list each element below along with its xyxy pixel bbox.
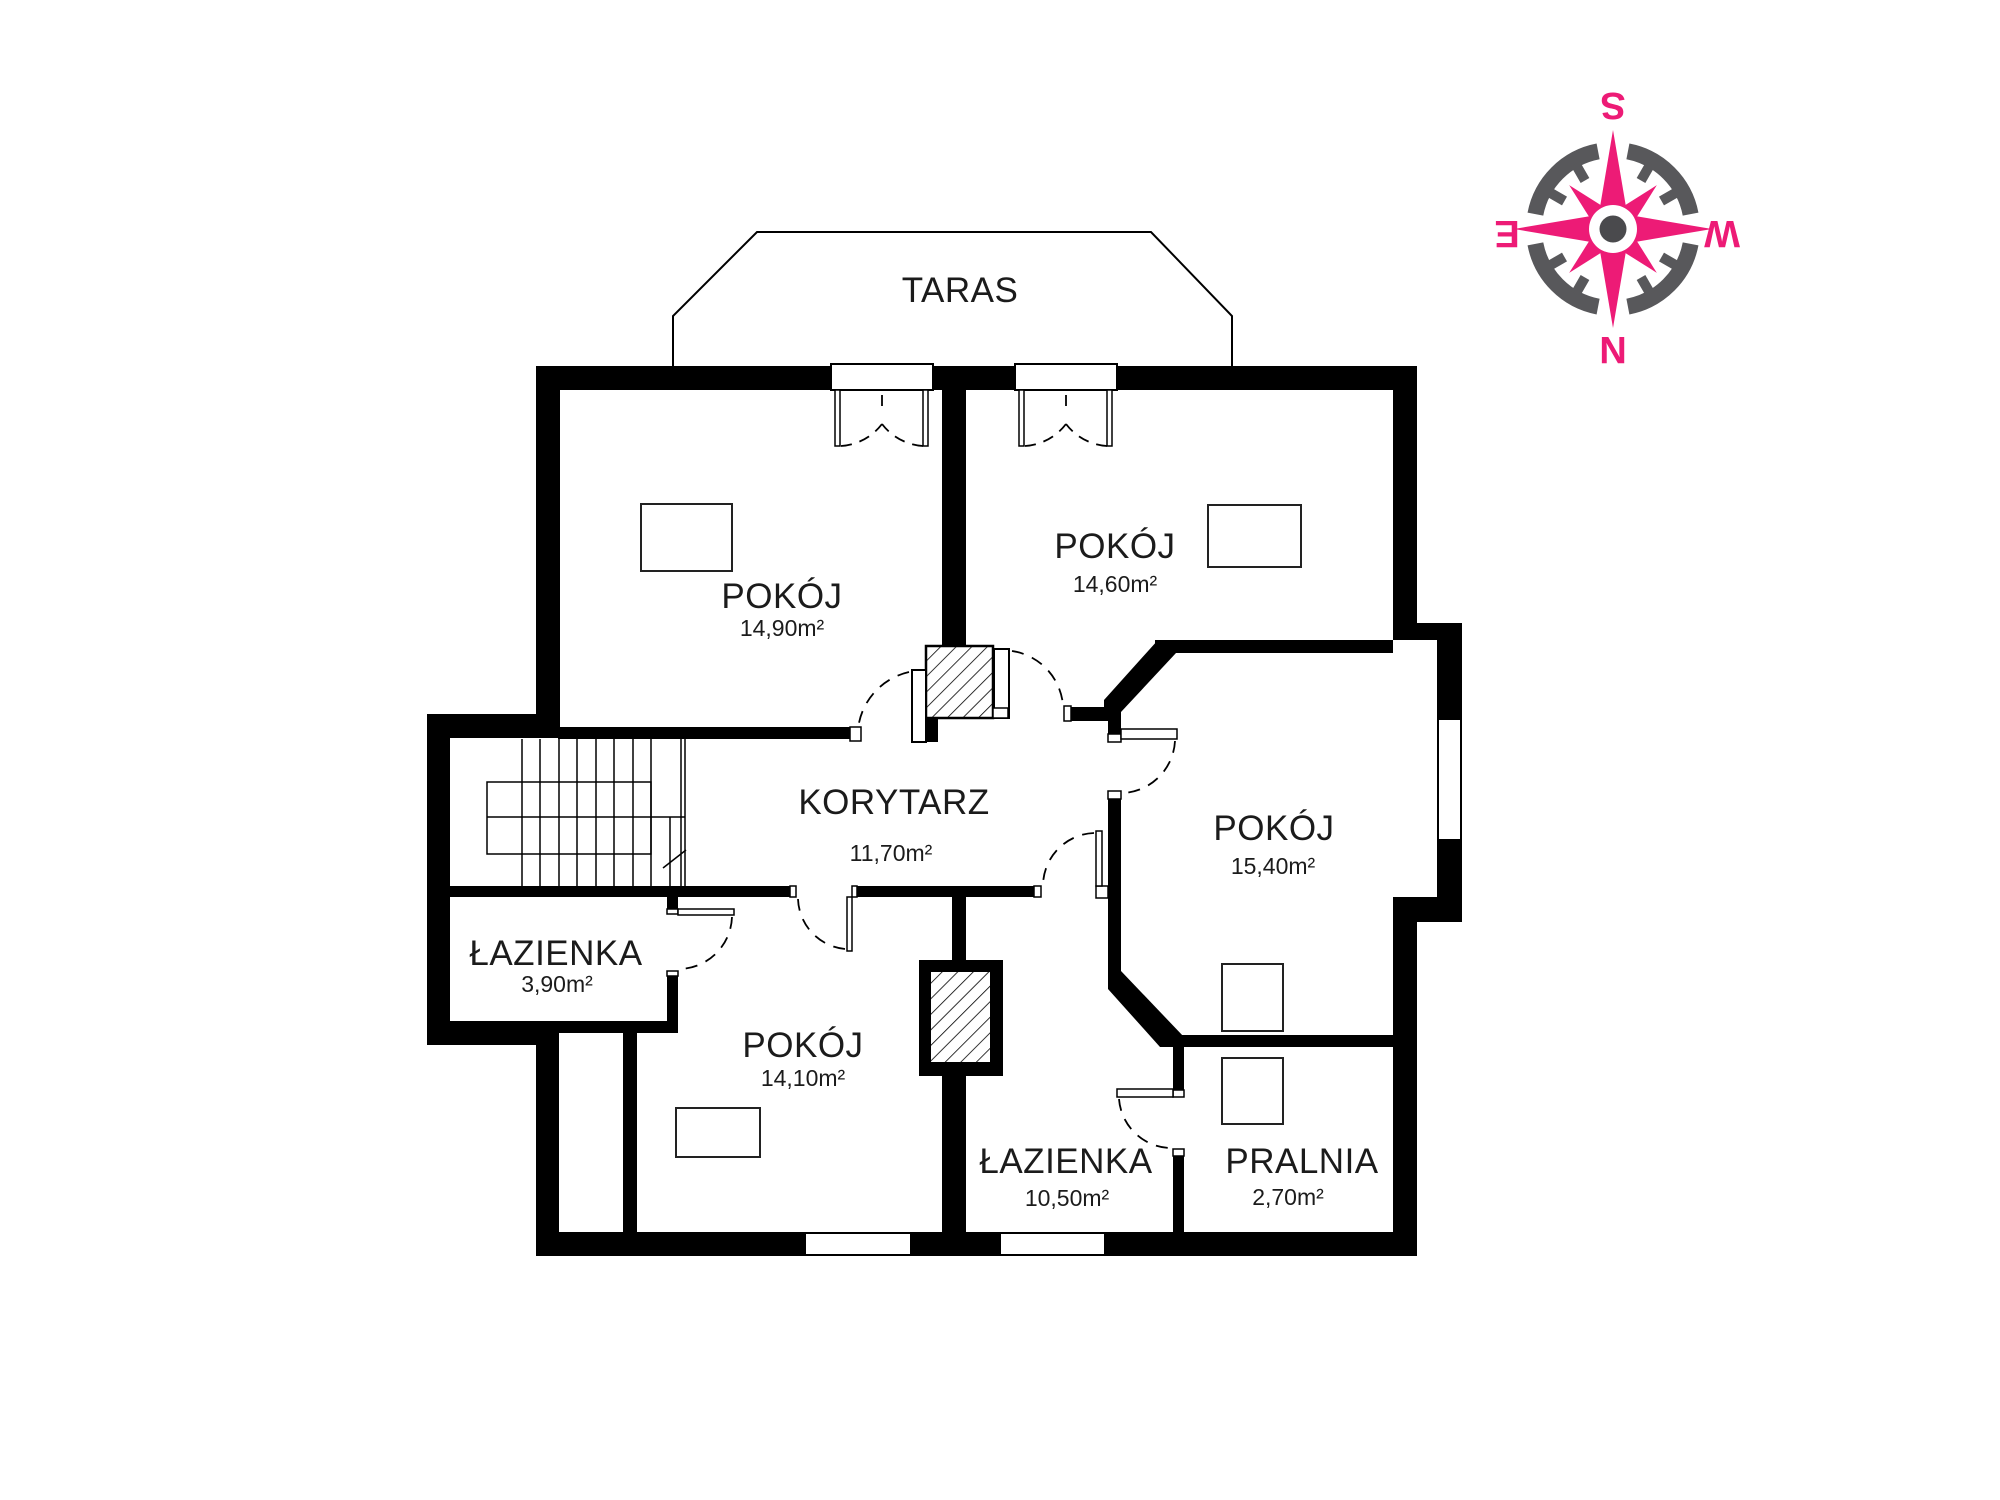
svg-text:14,60m²: 14,60m² [1073,571,1158,597]
svg-text:10,50m²: 10,50m² [1025,1185,1110,1211]
svg-text:15,40m²: 15,40m² [1231,853,1316,879]
svg-text:11,70m²: 11,70m² [850,840,933,866]
svg-text:14,90m²: 14,90m² [740,615,825,641]
svg-text:N: N [1599,328,1626,370]
svg-text:14,10m²: 14,10m² [761,1065,846,1091]
svg-text:2,70m²: 2,70m² [1252,1184,1324,1210]
svg-text:ŁAZIENKA: ŁAZIENKA [979,1142,1152,1181]
svg-text:POKÓJ: POKÓJ [1213,809,1334,848]
svg-text:PRALNIA: PRALNIA [1225,1142,1378,1181]
svg-text:TARAS: TARAS [902,271,1019,310]
svg-text:POKÓJ: POKÓJ [742,1026,863,1065]
svg-text:W: W [1704,212,1740,254]
svg-text:3,90m²: 3,90m² [521,971,593,997]
svg-text:S: S [1600,84,1625,126]
svg-text:POKÓJ: POKÓJ [721,577,842,616]
svg-text:ŁAZIENKA: ŁAZIENKA [469,934,642,973]
svg-text:POKÓJ: POKÓJ [1054,527,1175,566]
svg-text:KORYTARZ: KORYTARZ [798,783,989,822]
svg-text:E: E [1494,212,1519,254]
